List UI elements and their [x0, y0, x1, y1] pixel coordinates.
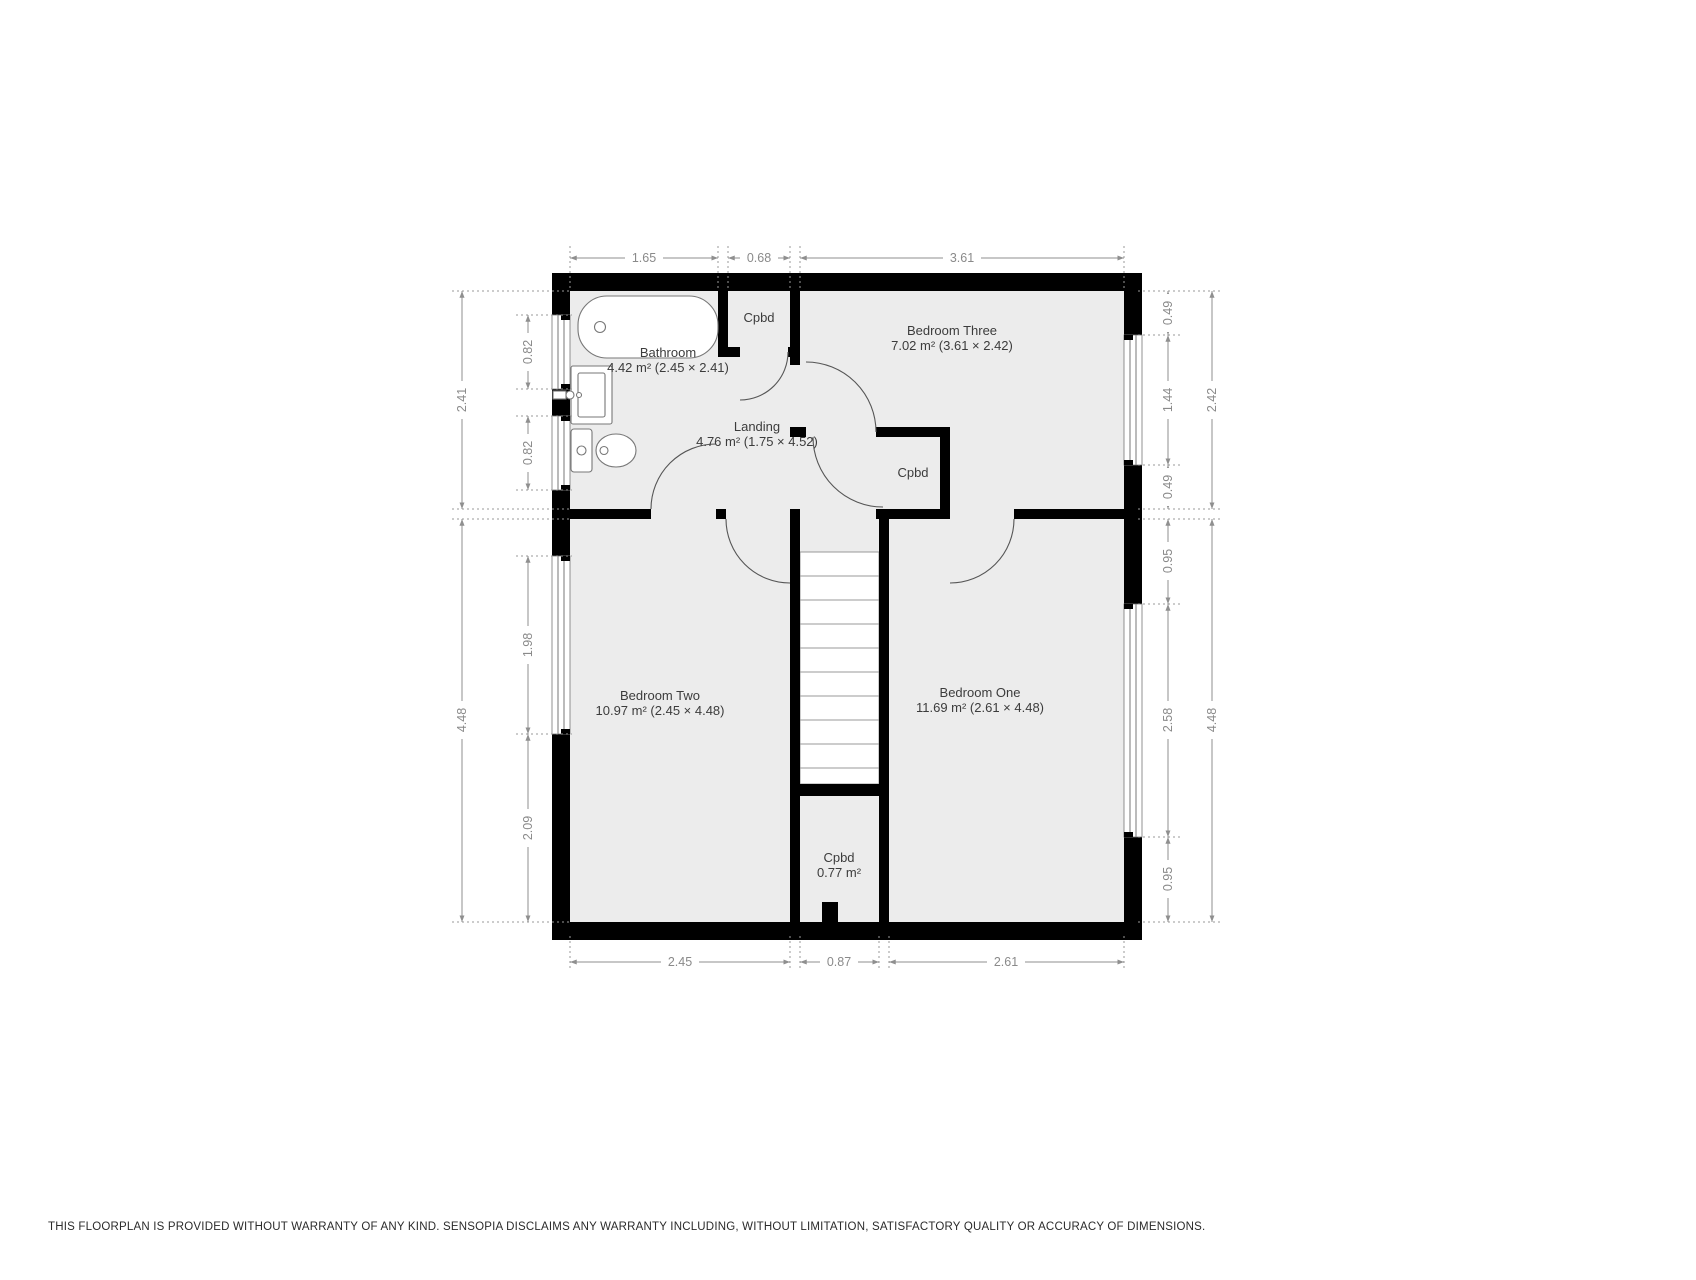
room-area-bedroom-two: 10.97 m² (2.45 × 4.48) [596, 703, 725, 718]
svg-text:0.82: 0.82 [521, 340, 535, 364]
staircase [800, 552, 879, 784]
dim-left-inner-4: 2.09 [521, 809, 536, 847]
svg-text:1.44: 1.44 [1161, 388, 1175, 412]
room-label-cpbd-landing: Cpbd [897, 465, 928, 480]
svg-text:2.61: 2.61 [994, 955, 1018, 969]
svg-text:0.95: 0.95 [1161, 867, 1175, 891]
dim-right-inner-1: 0.49 [1161, 294, 1176, 332]
room-label-bedroom-two: Bedroom Two [620, 688, 700, 703]
dim-left-outer-1: 2.41 [455, 381, 470, 419]
svg-text:0.49: 0.49 [1161, 301, 1175, 325]
dim-right-outer-2: 4.48 [1205, 701, 1220, 739]
room-area-bedroom-one: 11.69 m² (2.61 × 4.48) [916, 700, 1044, 715]
svg-text:0.49: 0.49 [1161, 475, 1175, 499]
dim-top-3: 3.61 [943, 251, 981, 266]
svg-text:3.61: 3.61 [950, 251, 974, 265]
window-bathroom-upper [552, 315, 570, 389]
dim-top-2: 0.68 [740, 251, 778, 266]
dim-bottom-1: 2.45 [661, 955, 699, 970]
dim-bottom-3: 2.61 [987, 955, 1025, 970]
dim-right-inner-6: 0.95 [1161, 860, 1176, 898]
disclaimer-text: THIS FLOORPLAN IS PROVIDED WITHOUT WARRA… [48, 1221, 1205, 1233]
svg-text:4.48: 4.48 [455, 708, 469, 732]
dim-right-outer-1: 2.42 [1205, 381, 1220, 419]
room-label-cpbd-bottom: Cpbd [823, 850, 854, 865]
room-area-bedroom-three: 7.02 m² (3.61 × 2.42) [891, 338, 1013, 353]
room-area-landing: 4.76 m² (1.75 × 4.52) [696, 434, 818, 449]
svg-text:0.82: 0.82 [521, 441, 535, 465]
svg-text:1.98: 1.98 [521, 633, 535, 657]
svg-text:2.42: 2.42 [1205, 388, 1219, 412]
wall-exterior-top [552, 273, 1142, 291]
room-area-bathroom: 4.42 m² (2.45 × 2.41) [607, 360, 729, 375]
dim-right-inner-5: 2.58 [1161, 701, 1176, 739]
floorplan-drawing: 1.65 0.68 3.61 2.45 0.87 2.61 2.41 4.48 [0, 0, 1696, 1280]
room-label-bathroom: Bathroom [640, 345, 696, 360]
wall-exterior-bottom [552, 922, 1142, 940]
dim-top-1: 1.65 [625, 251, 663, 266]
svg-text:1.65: 1.65 [632, 251, 656, 265]
dim-right-inner-3: 0.49 [1161, 468, 1176, 506]
window-bathroom-lower [552, 416, 570, 490]
floorplan-page: 1.65 0.68 3.61 2.45 0.87 2.61 2.41 4.48 [0, 0, 1696, 1280]
dim-left-inner-2: 0.82 [521, 434, 536, 472]
window-bedroom-two [552, 556, 570, 734]
window-bedroom-one [1124, 604, 1142, 837]
room-label-bedroom-one: Bedroom One [940, 685, 1021, 700]
room-label-bedroom-three: Bedroom Three [907, 323, 997, 338]
svg-text:2.58: 2.58 [1161, 708, 1175, 732]
dim-left-inner-3: 1.98 [521, 626, 536, 664]
dim-right-inner-4: 0.95 [1161, 542, 1176, 580]
svg-text:2.41: 2.41 [455, 388, 469, 412]
window-bedroom-three [1124, 335, 1142, 465]
svg-text:4.48: 4.48 [1205, 708, 1219, 732]
svg-text:0.87: 0.87 [827, 955, 851, 969]
wall-exterior-right [1124, 273, 1142, 335]
room-label-cpbd-top: Cpbd [743, 310, 774, 325]
room-area-cpbd-bottom: 0.77 m² [817, 865, 862, 880]
svg-text:0.68: 0.68 [747, 251, 771, 265]
dim-bottom-2: 0.87 [820, 955, 858, 970]
svg-text:0.95: 0.95 [1161, 549, 1175, 573]
svg-text:2.45: 2.45 [668, 955, 692, 969]
svg-text:2.09: 2.09 [521, 816, 535, 840]
dim-left-outer-2: 4.48 [455, 701, 470, 739]
dim-right-inner-2: 1.44 [1161, 381, 1176, 419]
dim-left-inner-1: 0.82 [521, 333, 536, 371]
wall-exterior-left [552, 273, 570, 315]
room-label-landing: Landing [734, 419, 780, 434]
